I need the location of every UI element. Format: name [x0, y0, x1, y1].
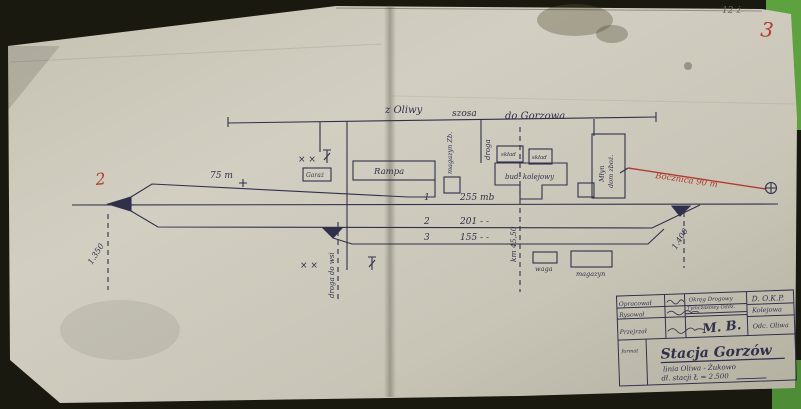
sklad-2-label: skład	[532, 155, 547, 161]
rampa-label: Rampa	[373, 167, 404, 177]
magazyn-label: magazyn	[576, 270, 605, 278]
format-label: format	[620, 348, 639, 355]
scanned-track-plan-photo: z Oliwy szosa do Gorzowa × × × × 75 m 1 …	[0, 0, 801, 409]
stain	[684, 62, 692, 70]
track-plan-svg: z Oliwy szosa do Gorzowa × × × × 75 m 1 …	[0, 0, 801, 409]
drafter-label: Rysował	[618, 311, 644, 319]
road-vertical-label: droga	[484, 139, 492, 160]
sklad-1-label: skład	[501, 152, 516, 158]
level-crossing-icon: × ×	[300, 261, 318, 271]
track-1-length: 255 mb	[459, 193, 495, 203]
bud-kolejowy-label: bud. kolejowy	[505, 173, 555, 181]
mlyn-label-1: Młyn	[598, 165, 606, 183]
track-3-length: 155 - -	[460, 233, 489, 243]
km-crossing-label: km 45,50	[509, 226, 518, 262]
track-2-number: 2	[423, 217, 430, 227]
magazyn-zb-label: magazyn Zb.	[446, 132, 454, 174]
mlyn-label-2: dom zboż.	[607, 155, 615, 188]
track-2-length: 201 - -	[459, 217, 489, 227]
waga-label: waga	[535, 265, 553, 273]
checker-label: Przejrzał	[619, 328, 647, 336]
org-line-3: Odc. Oliwa	[752, 321, 789, 330]
road-from-label: z Oliwy	[384, 105, 423, 116]
track-1-number: 1	[424, 193, 430, 203]
road-lower-label: droga do wsi	[328, 252, 336, 298]
track-3-number: 3	[424, 233, 430, 243]
red-mark-corner: 3	[759, 17, 774, 42]
level-crossing-icon: × ×	[298, 155, 316, 165]
center-fold	[384, 7, 396, 397]
maker-label: Opracował	[619, 300, 652, 308]
road-label: szosa	[452, 109, 477, 119]
garaz-label: Garaż	[306, 172, 325, 179]
stain	[596, 25, 628, 43]
org-line-1: D. O.K.P.	[751, 293, 785, 303]
road-to-label: do Gorzowa	[505, 111, 565, 122]
siding-length-label: 75 m	[210, 171, 233, 181]
shadow	[60, 300, 180, 360]
red-mark-left: 2	[93, 169, 106, 189]
org-line-2: Kolejowa	[751, 305, 782, 314]
end-of-line-marker	[766, 183, 777, 194]
